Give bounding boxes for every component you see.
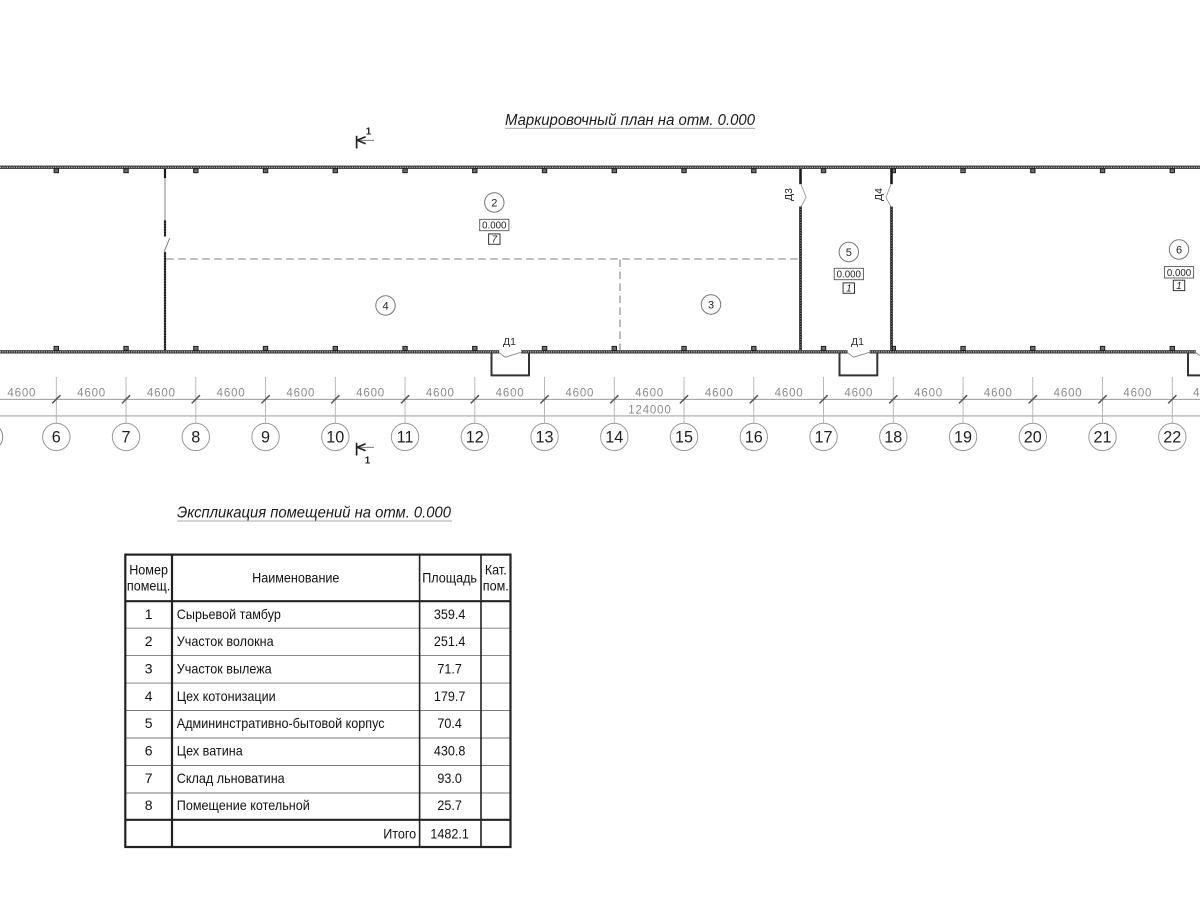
svg-text:4600: 4600 (426, 388, 454, 400)
svg-text:18: 18 (884, 429, 902, 447)
svg-text:4600: 4600 (914, 388, 942, 400)
svg-text:22: 22 (1163, 429, 1181, 447)
svg-text:4600: 4600 (7, 388, 35, 400)
svg-text:9: 9 (261, 429, 270, 447)
svg-text:1: 1 (846, 284, 851, 295)
svg-text:4600: 4600 (705, 388, 733, 400)
svg-text:179.7: 179.7 (434, 688, 466, 704)
svg-text:1: 1 (365, 456, 371, 467)
svg-text:4600: 4600 (1123, 388, 1151, 400)
svg-text:8: 8 (145, 797, 153, 813)
svg-text:0.000: 0.000 (837, 270, 862, 281)
svg-text:4600: 4600 (565, 388, 593, 400)
svg-text:2: 2 (491, 198, 497, 210)
svg-text:5: 5 (145, 715, 153, 731)
svg-text:Склад льноватина: Склад льноватина (177, 770, 285, 786)
svg-text:2: 2 (145, 633, 153, 649)
svg-text:70.4: 70.4 (437, 715, 462, 731)
svg-text:Экспликация помещений на отм.: Экспликация помещений на отм. 0.000 (177, 505, 451, 522)
svg-text:Номер: Номер (129, 561, 168, 577)
svg-text:0.000: 0.000 (1167, 268, 1192, 279)
svg-text:1: 1 (1176, 281, 1181, 292)
svg-text:1482.1: 1482.1 (430, 826, 469, 842)
svg-text:Д1: Д1 (851, 336, 864, 348)
svg-text:Площадь: Площадь (422, 570, 477, 586)
svg-text:4600: 4600 (217, 388, 245, 400)
svg-text:4600: 4600 (1193, 388, 1200, 400)
svg-text:14: 14 (605, 429, 623, 447)
svg-text:6: 6 (145, 742, 153, 758)
svg-text:Д3: Д3 (783, 188, 795, 201)
svg-text:8: 8 (191, 429, 200, 447)
svg-text:Маркировочный план на отм. 0.0: Маркировочный план на отм. 0.000 (505, 112, 755, 129)
svg-text:4600: 4600 (496, 388, 524, 400)
svg-text:1: 1 (366, 126, 372, 137)
svg-text:71.7: 71.7 (437, 661, 462, 677)
svg-text:7: 7 (122, 429, 131, 447)
svg-text:Цех котонизации: Цех котонизации (177, 688, 276, 704)
svg-text:359.4: 359.4 (434, 606, 466, 622)
svg-text:251.4: 251.4 (434, 633, 466, 649)
svg-text:16: 16 (745, 429, 763, 447)
svg-text:Наименование: Наименование (252, 570, 339, 586)
svg-text:3: 3 (145, 661, 153, 677)
svg-text:21: 21 (1094, 429, 1112, 447)
svg-text:4600: 4600 (1054, 388, 1082, 400)
svg-text:10: 10 (326, 429, 344, 447)
svg-text:Участок вылежа: Участок вылежа (177, 661, 272, 677)
svg-text:17: 17 (815, 429, 833, 447)
svg-text:93.0: 93.0 (437, 770, 462, 786)
svg-text:4600: 4600 (147, 388, 175, 400)
svg-text:Кат.: Кат. (485, 561, 507, 577)
svg-text:4600: 4600 (286, 388, 314, 400)
svg-text:4600: 4600 (775, 388, 803, 400)
svg-text:3: 3 (708, 300, 714, 312)
svg-text:Д1: Д1 (503, 336, 516, 348)
svg-text:6: 6 (52, 429, 61, 447)
svg-text:430.8: 430.8 (434, 742, 466, 758)
svg-text:11: 11 (397, 429, 414, 447)
svg-text:Админинстративно-бытовой корпу: Админинстративно-бытовой корпус (177, 715, 385, 731)
svg-text:0.000: 0.000 (482, 221, 507, 232)
svg-text:Д4: Д4 (873, 188, 885, 201)
svg-text:12: 12 (466, 429, 484, 447)
svg-text:4600: 4600 (984, 388, 1012, 400)
svg-text:4600: 4600 (844, 388, 872, 400)
svg-text:4: 4 (145, 688, 153, 704)
svg-text:124000: 124000 (628, 404, 671, 416)
svg-text:15: 15 (675, 429, 693, 447)
svg-text:6: 6 (1176, 245, 1182, 257)
svg-text:4600: 4600 (356, 388, 384, 400)
svg-text:помещ.: помещ. (127, 578, 170, 594)
svg-text:Помещение котельной: Помещение котельной (177, 797, 310, 813)
svg-text:Участок волокна: Участок волокна (177, 633, 274, 649)
svg-text:пом.: пом. (483, 578, 509, 594)
svg-text:4: 4 (382, 301, 388, 313)
svg-text:4600: 4600 (77, 388, 105, 400)
svg-text:7: 7 (492, 235, 498, 246)
svg-text:4600: 4600 (635, 388, 663, 400)
svg-text:Сырьевой тамбур: Сырьевой тамбур (177, 606, 281, 622)
svg-text:19: 19 (954, 429, 972, 447)
svg-text:20: 20 (1024, 429, 1042, 447)
svg-text:Итого: Итого (383, 826, 416, 842)
svg-text:25.7: 25.7 (437, 797, 462, 813)
svg-text:13: 13 (536, 429, 554, 447)
svg-text:Цех ватина: Цех ватина (177, 742, 243, 758)
svg-text:5: 5 (846, 247, 852, 259)
svg-text:1: 1 (145, 606, 153, 622)
svg-text:7: 7 (145, 770, 153, 786)
